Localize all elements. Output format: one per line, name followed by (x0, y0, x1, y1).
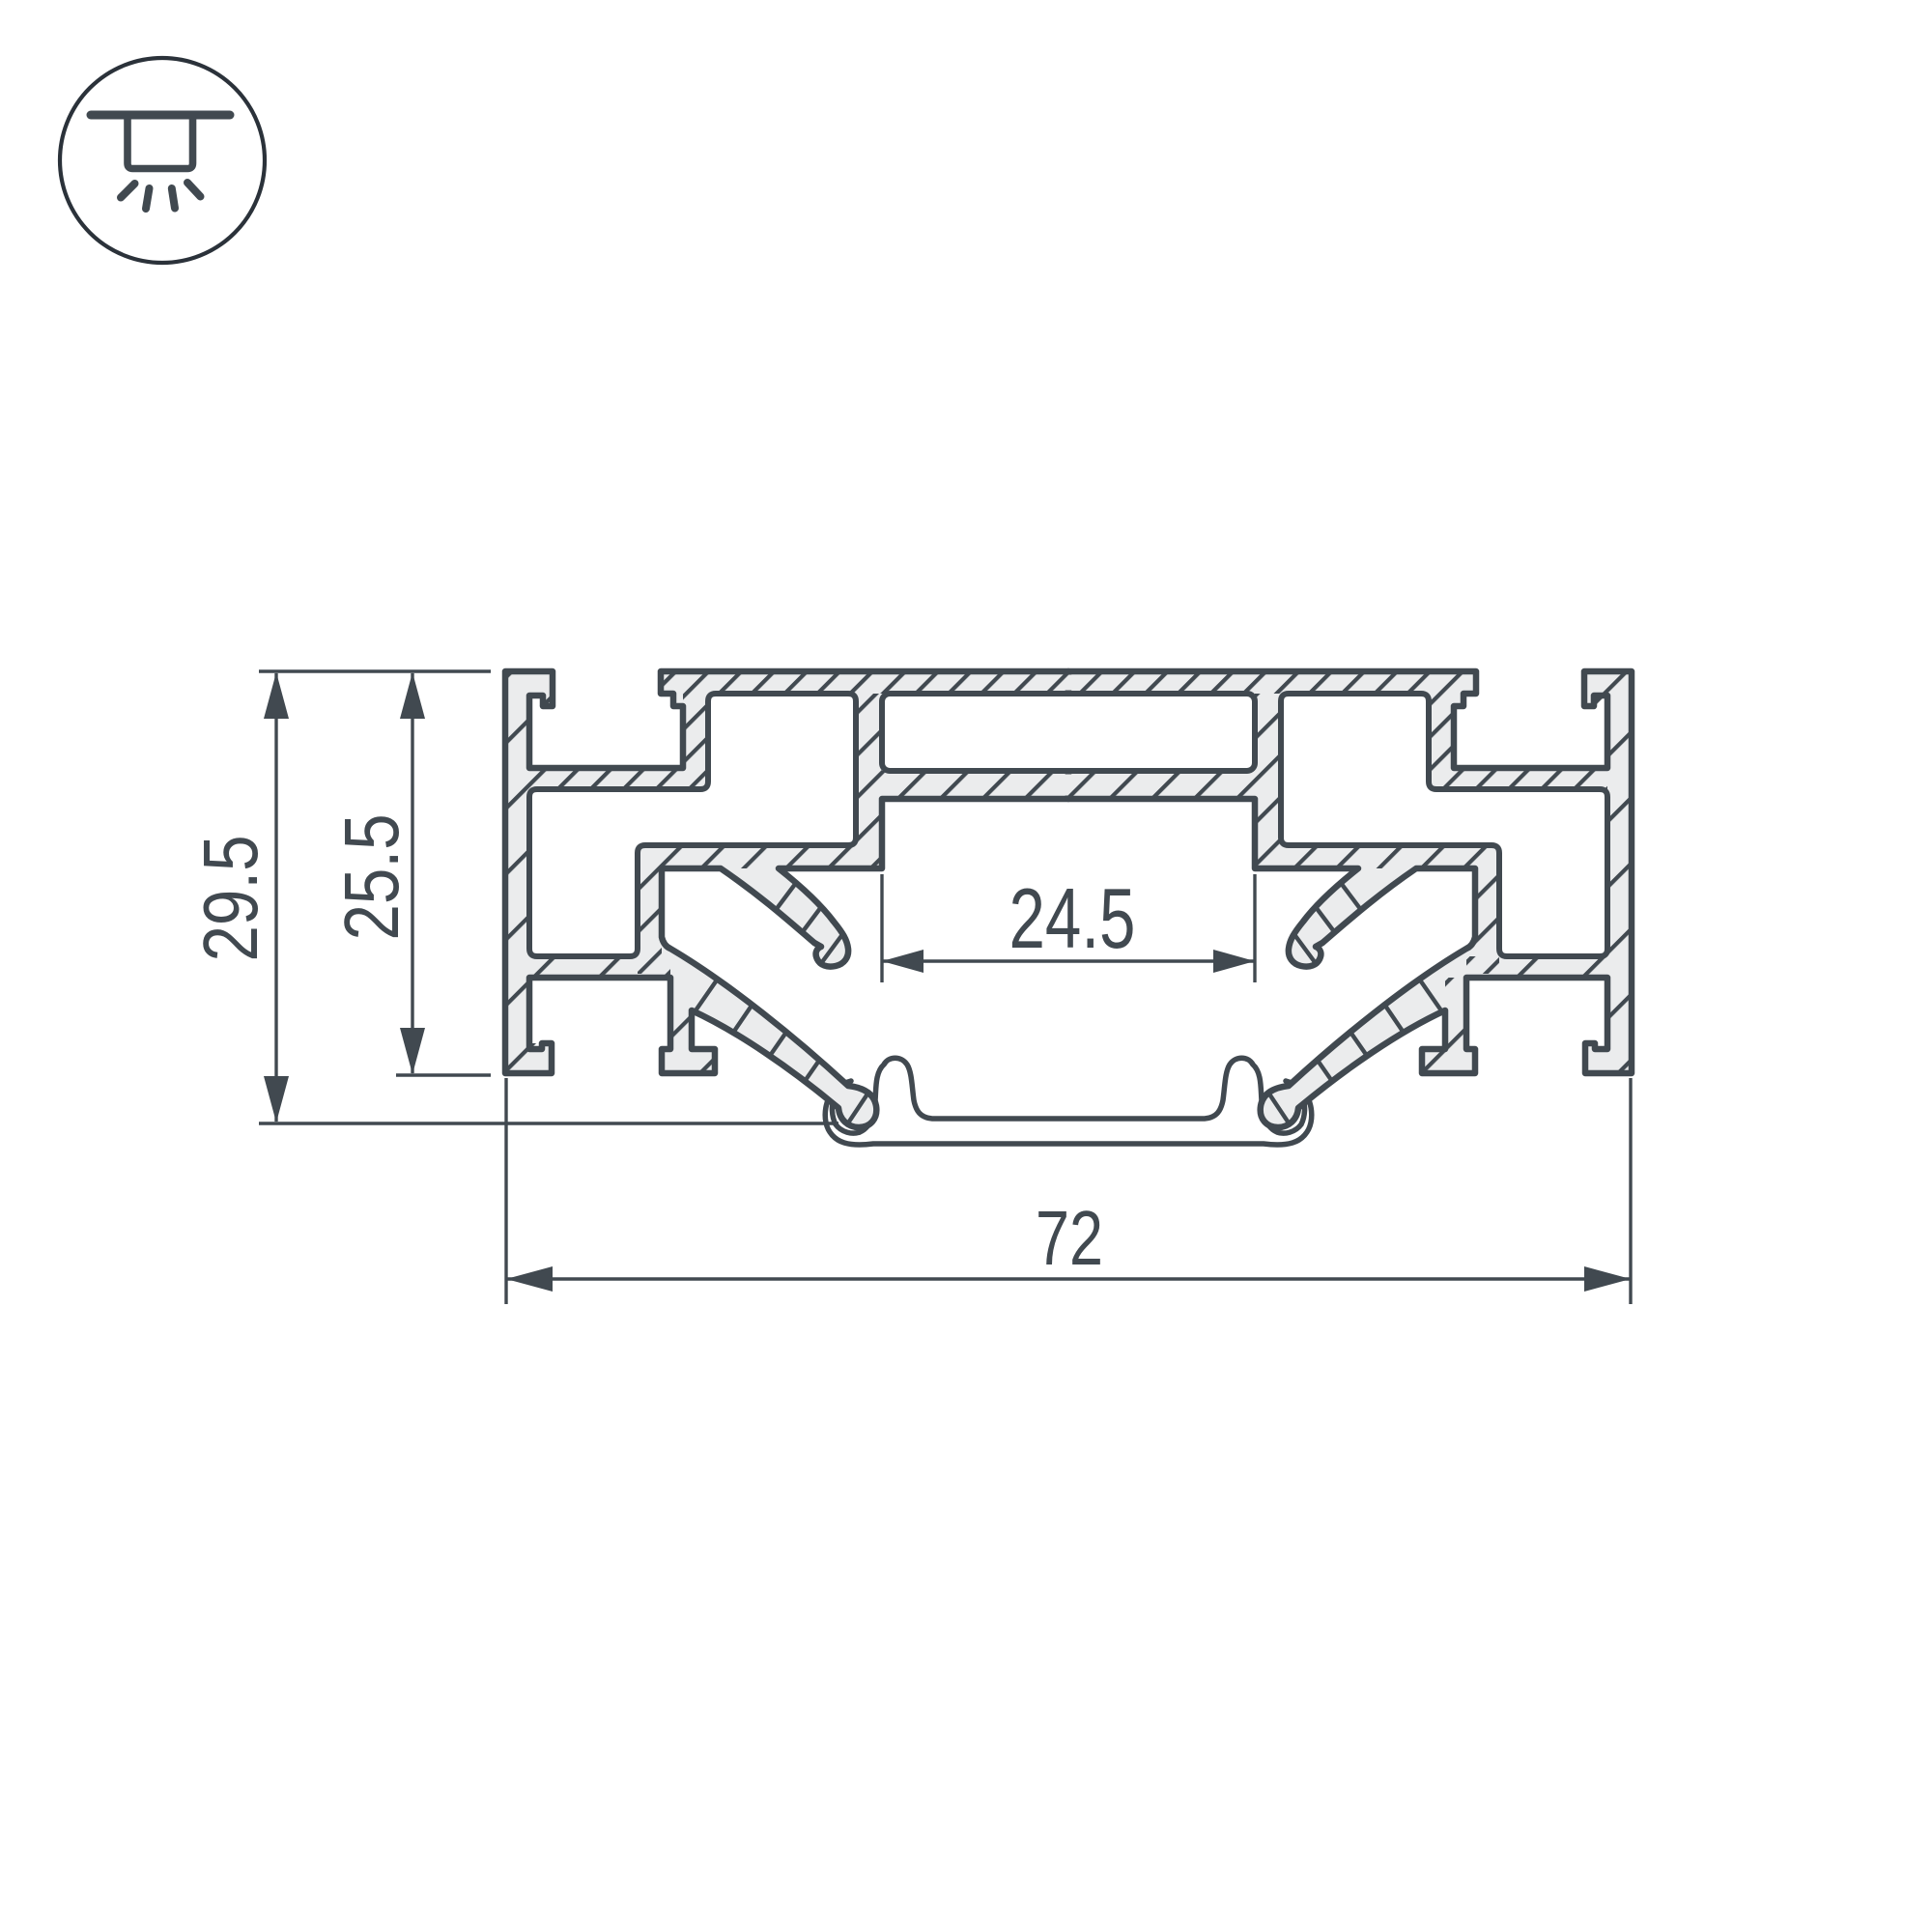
svg-text:25.5: 25.5 (328, 814, 414, 941)
svg-text:29.5: 29.5 (187, 836, 273, 962)
svg-text:24.5: 24.5 (1009, 870, 1136, 966)
svg-text:72: 72 (1036, 1195, 1103, 1281)
